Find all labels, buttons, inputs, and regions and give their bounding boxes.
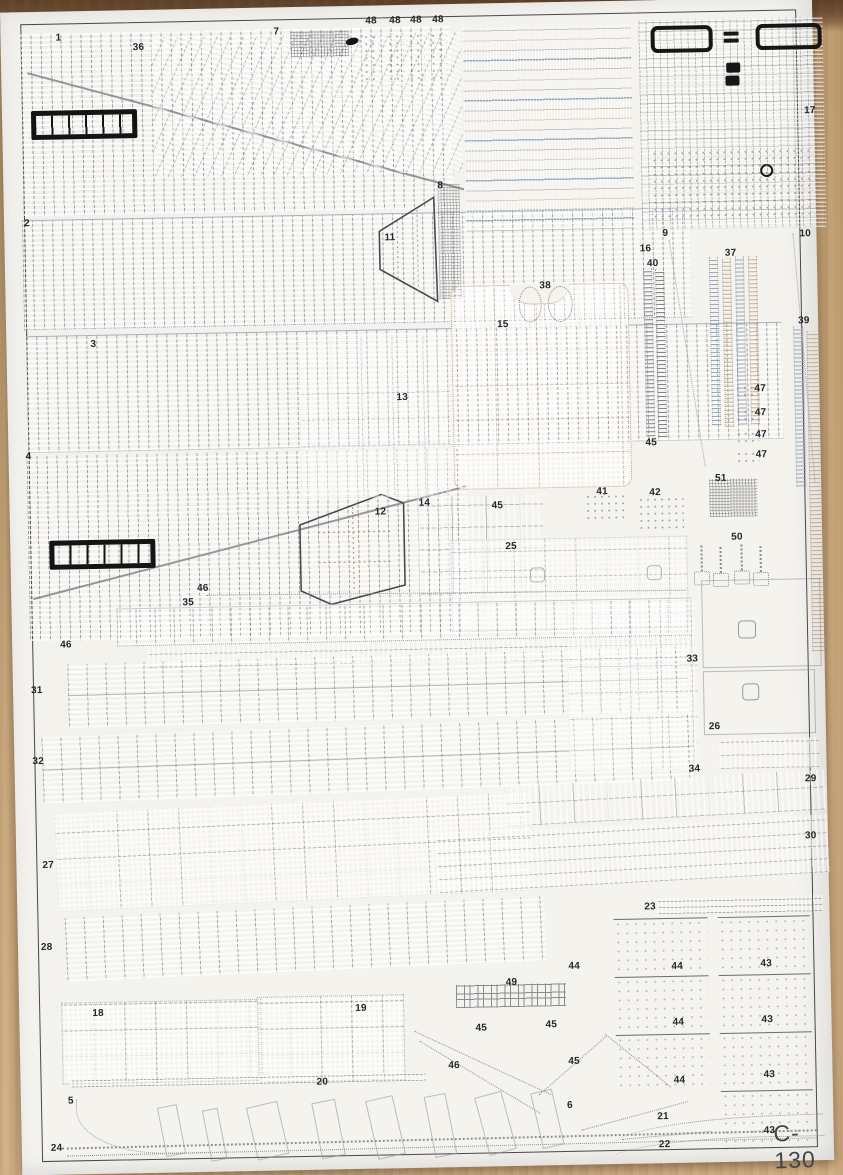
part-26-hole xyxy=(742,683,759,700)
pin-stem xyxy=(719,547,721,573)
part-number-label-2: 2 xyxy=(24,218,30,229)
part-7-strip xyxy=(290,30,348,57)
part-23-strip xyxy=(657,895,822,914)
part-17-lower-dots xyxy=(651,147,816,222)
pin-stem xyxy=(740,545,742,571)
part-number-label-20: 20 xyxy=(317,1077,329,1088)
part-number-label-34: 34 xyxy=(689,763,701,774)
part-number-label-6: 6 xyxy=(567,1100,573,1111)
part-number-label-45: 45 xyxy=(491,500,503,511)
cockpit-window-right xyxy=(755,23,821,50)
part-number-label-50: 50 xyxy=(731,532,743,543)
part-33-hole xyxy=(738,620,756,638)
part-number-label-45: 45 xyxy=(476,1023,488,1034)
part-number-label-33: 33 xyxy=(686,653,698,664)
part-number-label-22: 22 xyxy=(659,1139,671,1150)
part-number-label-19: 19 xyxy=(355,1003,367,1014)
part-number-label-16: 16 xyxy=(640,243,652,254)
part-number-label-48: 48 xyxy=(365,15,377,26)
part-number-label-39: 39 xyxy=(798,315,810,326)
part-number-label-15: 15 xyxy=(497,319,509,330)
part-number-label-42: 42 xyxy=(649,487,661,498)
part-number-label-43: 43 xyxy=(760,958,772,969)
part-number-label-25: 25 xyxy=(505,541,517,552)
part-number-label-29: 29 xyxy=(805,773,817,784)
part-number-label-47: 47 xyxy=(755,407,767,418)
part-13-frames xyxy=(298,334,451,499)
part-number-label-35: 35 xyxy=(182,597,194,608)
part-33-panel xyxy=(701,578,822,668)
part-11-template xyxy=(377,194,441,305)
striped-deck-panel xyxy=(462,25,634,232)
part-number-label-48: 48 xyxy=(389,15,401,26)
part-number-label-45: 45 xyxy=(545,1019,557,1030)
part-39-strip-blue xyxy=(793,326,806,486)
part-number-label-38: 38 xyxy=(539,280,551,291)
part-number-label-27: 27 xyxy=(42,860,54,871)
part-number-label-44: 44 xyxy=(672,1017,684,1028)
part-44-tray-row-3 xyxy=(616,1033,711,1092)
part-51-hatched-block xyxy=(709,478,758,517)
part-48-grid-2 xyxy=(387,33,405,85)
part-number-label-12: 12 xyxy=(375,506,387,517)
part-number-label-43: 43 xyxy=(761,1014,773,1025)
black-square-1 xyxy=(726,62,740,72)
part-number-label-14: 14 xyxy=(418,498,430,509)
wood-table-background: C-130 1367484848481728119101640373931538… xyxy=(0,0,843,1175)
part-number-label-43: 43 xyxy=(764,1125,776,1136)
part-number-label-31: 31 xyxy=(31,685,43,696)
part-number-label-36: 36 xyxy=(133,42,145,53)
pin-stem xyxy=(700,545,702,571)
part-number-label-43: 43 xyxy=(763,1069,775,1080)
part-48-grid-1 xyxy=(363,33,381,85)
part-number-label-13: 13 xyxy=(396,392,408,403)
part-number-label-23: 23 xyxy=(644,901,656,912)
part-8-strip xyxy=(437,184,461,299)
part-number-label-40: 40 xyxy=(647,258,659,269)
part-number-label-44: 44 xyxy=(671,961,683,972)
part-number-label-30: 30 xyxy=(805,830,817,841)
part-48-grid-4 xyxy=(429,32,447,84)
part-number-label-9: 9 xyxy=(662,228,668,239)
part-number-label-46: 46 xyxy=(197,583,209,594)
part-number-label-48: 48 xyxy=(432,14,444,25)
part-number-label-1: 1 xyxy=(55,32,61,43)
part-44-tray-row-2 xyxy=(615,975,710,1034)
part-34-frames xyxy=(566,599,699,771)
kit-title: C-130 xyxy=(773,1118,835,1174)
part-26-lines xyxy=(719,737,820,769)
parts-sheet: C-130 1367484848481728119101640373931538… xyxy=(0,0,834,1175)
part-number-label-32: 32 xyxy=(32,756,44,767)
part-25-hole-2 xyxy=(647,565,662,580)
part-number-label-28: 28 xyxy=(41,942,53,953)
black-bar-2 xyxy=(724,38,739,42)
part-number-label-49: 49 xyxy=(506,977,518,988)
part-number-label-4: 4 xyxy=(25,451,31,462)
part-number-label-47: 47 xyxy=(755,429,767,440)
part-15-floor-panel xyxy=(450,283,632,490)
cockpit-window-left xyxy=(650,25,713,53)
part-number-label-3: 3 xyxy=(90,339,96,350)
part-number-label-44: 44 xyxy=(674,1075,686,1086)
part-number-label-10: 10 xyxy=(799,228,811,239)
part-48-grid-3 xyxy=(407,33,425,85)
part-number-label-21: 21 xyxy=(657,1111,669,1122)
window-strip-black-1 xyxy=(31,109,138,140)
part-number-label-47: 47 xyxy=(754,383,766,394)
part-number-label-17: 17 xyxy=(804,105,816,116)
part-number-label-11: 11 xyxy=(384,232,395,243)
part-number-label-24: 24 xyxy=(51,1143,63,1154)
part-38-oval-left xyxy=(518,286,542,322)
part-number-label-18: 18 xyxy=(92,1008,104,1019)
part-number-label-7: 7 xyxy=(273,26,279,37)
part-number-label-37: 37 xyxy=(725,248,737,259)
part-number-label-48: 48 xyxy=(410,15,422,26)
part-number-label-5: 5 xyxy=(68,1095,74,1106)
part-42-patch xyxy=(637,496,684,531)
part-25-hole-1 xyxy=(530,567,545,582)
part-44-tray-row-1 xyxy=(614,917,709,976)
part-19-grid xyxy=(257,994,406,1083)
window-strip-black-2 xyxy=(49,539,156,570)
part-number-label-45: 45 xyxy=(568,1056,580,1067)
part-number-label-41: 41 xyxy=(596,486,608,497)
part-17-cockpit-panel xyxy=(638,17,826,230)
part-number-label-45: 45 xyxy=(645,437,657,448)
black-square-2 xyxy=(725,75,739,85)
part-number-label-44: 44 xyxy=(568,961,580,972)
part-43-tray-row-3 xyxy=(720,1031,813,1090)
part-number-label-47: 47 xyxy=(756,449,768,460)
part-number-label-51: 51 xyxy=(715,473,727,484)
part-number-label-26: 26 xyxy=(709,721,721,732)
part-number-label-46: 46 xyxy=(448,1060,460,1071)
part-number-label-8: 8 xyxy=(437,180,443,191)
black-bar-1 xyxy=(724,31,739,35)
pin-stem xyxy=(759,546,761,572)
part-number-label-46: 46 xyxy=(60,639,72,650)
